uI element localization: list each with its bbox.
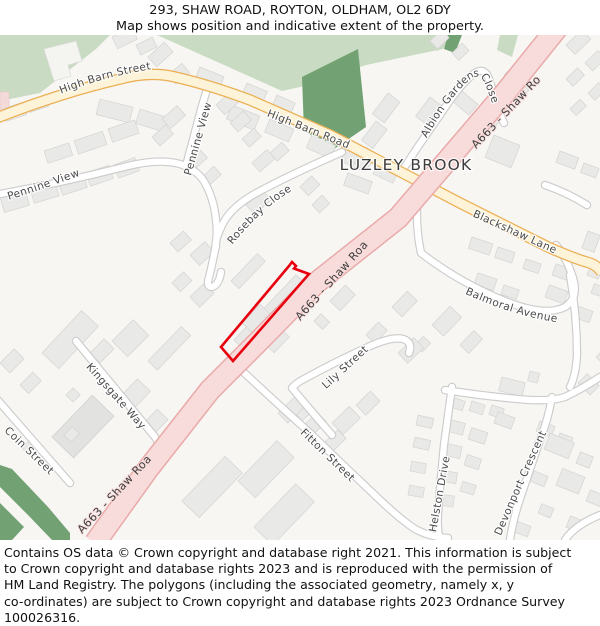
place-label-luzley-brook: LUZLEY BROOK — [340, 156, 473, 174]
copyright-line: co-ordinates) are subject to Crown copyr… — [4, 594, 596, 610]
map-header: 293, SHAW ROAD, ROYTON, OLDHAM, OL2 6DY … — [0, 0, 600, 35]
map-canvas: High Barn Street High Barn Road Blacksha… — [0, 35, 600, 540]
page-title: 293, SHAW ROAD, ROYTON, OLDHAM, OL2 6DY — [0, 3, 600, 19]
copyright-notice: Contains OS data © Crown copyright and d… — [0, 540, 600, 626]
page-subtitle: Map shows position and indicative extent… — [0, 19, 600, 34]
copyright-line: HM Land Registry. The polygons (includin… — [4, 577, 596, 593]
copyright-line: to Crown copyright and database rights 2… — [4, 561, 596, 577]
copyright-line: 100026316. — [4, 610, 596, 626]
copyright-line: Contains OS data © Crown copyright and d… — [4, 545, 596, 561]
